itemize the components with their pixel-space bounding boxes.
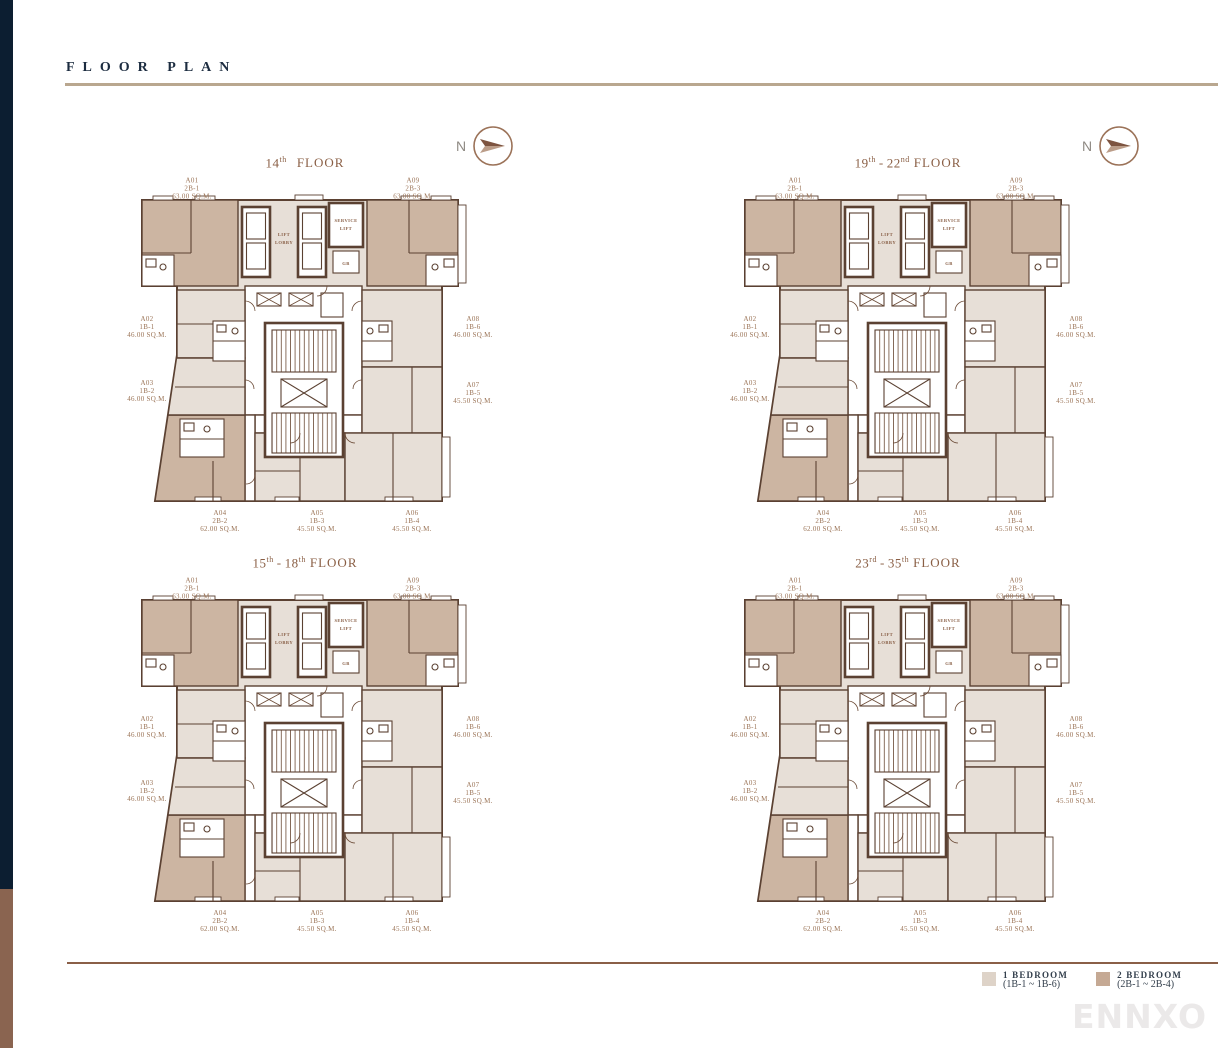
svg-text:1B-1: 1B-1 [139, 723, 154, 731]
svg-text:1B-1: 1B-1 [742, 323, 757, 331]
svg-text:A05: A05 [914, 509, 927, 517]
svg-text:1B-1: 1B-1 [742, 723, 757, 731]
staircase-upper [875, 730, 939, 772]
unit-label-a08: A08 1B-6 46.00 SQ.M. [1056, 715, 1095, 739]
lift-car [906, 643, 925, 669]
svg-text:63.00 SQ.M.: 63.00 SQ.M. [996, 593, 1035, 601]
lift-car [850, 643, 869, 669]
svg-text:A06: A06 [1009, 909, 1022, 917]
lift-lobby: LIFT LOBBY SERVICE LIFT GB [845, 203, 966, 277]
svg-text:1B-1: 1B-1 [139, 323, 154, 331]
svg-text:A01: A01 [789, 577, 802, 585]
svg-text:1B-2: 1B-2 [742, 387, 757, 395]
service-lift-label: LIFT [943, 226, 955, 231]
unit-label-a02: A02 1B-1 46.00 SQ.M. [730, 715, 769, 739]
lift-car [303, 613, 322, 639]
lift-lobby-label: LOBBY [878, 640, 896, 645]
svg-text:A08: A08 [1070, 315, 1083, 323]
unit-label-a02: A02 1B-1 46.00 SQ.M. [127, 315, 166, 339]
svg-text:1B-5: 1B-5 [1068, 789, 1083, 797]
svg-text:1B-5: 1B-5 [465, 789, 480, 797]
title-floor-word: FLOOR [297, 155, 345, 170]
title-floor-start-ordinal: th [869, 155, 876, 164]
title-separator: - [880, 555, 885, 570]
staircase-lower [272, 413, 336, 453]
lift-car [906, 613, 925, 639]
service-lift [932, 203, 966, 247]
staircase-lower [875, 813, 939, 853]
legend-swatch-2-bedroom [1096, 972, 1110, 986]
svg-text:1B-6: 1B-6 [465, 323, 480, 331]
unit-label-a09: A09 2B-3 63.00 SQ.M. [996, 577, 1035, 601]
unit-label-a08: A08 1B-6 46.00 SQ.M. [453, 715, 492, 739]
svg-text:A07: A07 [1070, 781, 1083, 789]
svg-text:2B-3: 2B-3 [405, 585, 420, 593]
svg-text:1B-4: 1B-4 [1007, 917, 1022, 925]
service-lift-label: LIFT [943, 626, 955, 631]
svg-text:A09: A09 [407, 177, 420, 185]
title-floor-end-ordinal: th [299, 555, 306, 564]
unit-a07 [965, 767, 1045, 833]
lift-car [850, 613, 869, 639]
svg-text:A03: A03 [744, 379, 757, 387]
floor-plan-19th-22nd: 19th-22ndFLOOR [698, 155, 1148, 545]
svg-text:46.00 SQ.M.: 46.00 SQ.M. [127, 795, 166, 803]
lift-car [850, 213, 869, 239]
unit-a07 [965, 367, 1045, 433]
compass-north-label: N [456, 138, 466, 154]
svg-text:2B-2: 2B-2 [212, 917, 227, 925]
svg-text:45.50 SQ.M.: 45.50 SQ.M. [453, 397, 492, 405]
floor-plan-drawing: LIFT LOBBY SERVICE LIFT GB A01 2B-1 63.0… [698, 575, 1148, 943]
svg-text:A09: A09 [407, 577, 420, 585]
gb-label: GB [342, 261, 349, 266]
compass-north-label: N [1082, 138, 1092, 154]
lift-car [247, 613, 266, 639]
lift-car [303, 213, 322, 239]
svg-text:A08: A08 [1070, 715, 1083, 723]
unit-label-a01: A01 2B-1 63.00 SQ.M. [172, 577, 211, 601]
svg-text:2B-1: 2B-1 [787, 585, 802, 593]
service-lift-label: SERVICE [937, 218, 960, 223]
floor-plan-title: 19th-22ndFLOOR [683, 155, 1133, 175]
lift-lobby: LIFT LOBBY SERVICE LIFT GB [242, 203, 363, 277]
svg-text:A06: A06 [406, 509, 419, 517]
svg-text:A04: A04 [817, 509, 830, 517]
svg-text:62.00 SQ.M.: 62.00 SQ.M. [803, 525, 842, 533]
staircase-upper [875, 330, 939, 372]
svg-text:1B-6: 1B-6 [465, 723, 480, 731]
service-lift-label: LIFT [340, 226, 352, 231]
floor-plan-page: FLOOR PLAN N N 14thFLOOR [0, 0, 1218, 1048]
svg-text:46.00 SQ.M.: 46.00 SQ.M. [730, 795, 769, 803]
gb-label: GB [945, 261, 952, 266]
unit-label-a06: A06 1B-4 45.50 SQ.M. [392, 909, 431, 933]
floor-plan-title: 15th-18thFLOOR [80, 555, 530, 575]
svg-text:2B-2: 2B-2 [815, 917, 830, 925]
svg-text:A05: A05 [311, 509, 324, 517]
svg-text:45.50 SQ.M.: 45.50 SQ.M. [900, 525, 939, 533]
legend-swatch-1-bedroom [982, 972, 996, 986]
lift-lobby: LIFT LOBBY SERVICE LIFT GB [242, 603, 363, 677]
svg-text:A03: A03 [744, 779, 757, 787]
lift-car [247, 643, 266, 669]
svg-text:46.00 SQ.M.: 46.00 SQ.M. [730, 731, 769, 739]
svg-text:A03: A03 [141, 779, 154, 787]
unit-label-a09: A09 2B-3 63.00 SQ.M. [393, 577, 432, 601]
svg-text:1B-3: 1B-3 [309, 517, 324, 525]
service-lift-label: SERVICE [334, 618, 357, 623]
service-lift-label: SERVICE [937, 618, 960, 623]
unit-label-a09: A09 2B-3 63.00 SQ.M. [393, 177, 432, 201]
svg-text:46.00 SQ.M.: 46.00 SQ.M. [127, 331, 166, 339]
unit-label-a01: A01 2B-1 63.00 SQ.M. [775, 177, 814, 201]
svg-text:46.00 SQ.M.: 46.00 SQ.M. [730, 395, 769, 403]
unit-label-a04: A04 2B-2 62.00 SQ.M. [803, 509, 842, 533]
unit-label-a07: A07 1B-5 45.50 SQ.M. [453, 381, 492, 405]
svg-text:2B-1: 2B-1 [787, 185, 802, 193]
svg-text:1B-2: 1B-2 [139, 387, 154, 395]
footer-divider [67, 962, 1218, 964]
svg-text:2B-3: 2B-3 [405, 185, 420, 193]
svg-text:1B-3: 1B-3 [912, 917, 927, 925]
floor-plan-23rd-35th: 23rd-35thFLOOR [698, 555, 1148, 945]
svg-text:46.00 SQ.M.: 46.00 SQ.M. [730, 331, 769, 339]
svg-text:45.50 SQ.M.: 45.50 SQ.M. [297, 925, 336, 933]
svg-text:A01: A01 [789, 177, 802, 185]
svg-text:46.00 SQ.M.: 46.00 SQ.M. [453, 331, 492, 339]
svg-text:A01: A01 [186, 577, 199, 585]
svg-text:63.00 SQ.M.: 63.00 SQ.M. [172, 593, 211, 601]
lift-lobby-label: LOBBY [275, 640, 293, 645]
svg-text:A05: A05 [311, 909, 324, 917]
svg-text:1B-5: 1B-5 [1068, 389, 1083, 397]
unit-label-a08: A08 1B-6 46.00 SQ.M. [453, 315, 492, 339]
unit-label-a06: A06 1B-4 45.50 SQ.M. [392, 509, 431, 533]
svg-text:1B-6: 1B-6 [1068, 723, 1083, 731]
svg-text:45.50 SQ.M.: 45.50 SQ.M. [453, 797, 492, 805]
svg-text:A09: A09 [1010, 177, 1023, 185]
unit-label-a04: A04 2B-2 62.00 SQ.M. [200, 909, 239, 933]
title-separator: - [277, 555, 282, 570]
svg-text:1B-6: 1B-6 [1068, 323, 1083, 331]
brand-watermark: ENNXO [1072, 997, 1207, 1036]
title-floor-end-ordinal: nd [901, 155, 910, 164]
lift-lobby-label: LIFT [278, 232, 290, 237]
svg-text:A01: A01 [186, 177, 199, 185]
title-floor-start-ordinal: rd [869, 555, 877, 564]
floor-plan-15th-18th: 15th-18thFLOOR [95, 555, 545, 945]
svg-text:46.00 SQ.M.: 46.00 SQ.M. [1056, 331, 1095, 339]
svg-text:2B-2: 2B-2 [212, 517, 227, 525]
gb-label: GB [945, 661, 952, 666]
title-floor-end: 22 [887, 155, 901, 170]
svg-text:46.00 SQ.M.: 46.00 SQ.M. [453, 731, 492, 739]
unit-label-a07: A07 1B-5 45.50 SQ.M. [1056, 781, 1095, 805]
svg-text:45.50 SQ.M.: 45.50 SQ.M. [392, 525, 431, 533]
title-floor-start-ordinal: th [280, 155, 287, 164]
unit-label-a01: A01 2B-1 63.00 SQ.M. [172, 177, 211, 201]
lift-lobby-label: LIFT [278, 632, 290, 637]
legend-item-2-bedroom: 2 BEDROOM (2B-1 ~ 2B-4) [1096, 971, 1182, 991]
staircase-lower [875, 413, 939, 453]
svg-text:1B-2: 1B-2 [139, 787, 154, 795]
service-lift-label: LIFT [340, 626, 352, 631]
svg-text:A07: A07 [1070, 381, 1083, 389]
title-floor-start: 23 [855, 555, 869, 570]
svg-text:1B-5: 1B-5 [465, 389, 480, 397]
svg-text:A02: A02 [141, 315, 154, 323]
unit-label-a06: A06 1B-4 45.50 SQ.M. [995, 509, 1034, 533]
lift-car [303, 243, 322, 269]
unit-label-a03: A03 1B-2 46.00 SQ.M. [730, 379, 769, 403]
unit-label-a06: A06 1B-4 45.50 SQ.M. [995, 909, 1034, 933]
svg-text:63.00 SQ.M.: 63.00 SQ.M. [996, 193, 1035, 201]
staircase-upper [272, 730, 336, 772]
unit-label-a03: A03 1B-2 46.00 SQ.M. [127, 779, 166, 803]
svg-text:1B-2: 1B-2 [742, 787, 757, 795]
svg-text:A02: A02 [744, 315, 757, 323]
lift-car [850, 243, 869, 269]
service-lift [329, 203, 363, 247]
svg-text:A02: A02 [141, 715, 154, 723]
svg-text:A04: A04 [214, 909, 227, 917]
unit-label-a02: A02 1B-1 46.00 SQ.M. [730, 315, 769, 339]
lift-lobby-label: LIFT [881, 232, 893, 237]
lift-car [303, 643, 322, 669]
svg-text:45.50 SQ.M.: 45.50 SQ.M. [995, 925, 1034, 933]
svg-text:46.00 SQ.M.: 46.00 SQ.M. [127, 395, 166, 403]
floor-plan-drawing: LIFT LOBBY SERVICE LIFT GB A01 2B-1 63.0… [698, 175, 1148, 543]
unit-a07 [362, 367, 442, 433]
title-floor-start: 15 [253, 555, 267, 570]
svg-text:2B-1: 2B-1 [184, 585, 199, 593]
unit-label-a05: A05 1B-3 45.50 SQ.M. [900, 509, 939, 533]
svg-text:45.50 SQ.M.: 45.50 SQ.M. [1056, 397, 1095, 405]
unit-label-a09: A09 2B-3 63.00 SQ.M. [996, 177, 1035, 201]
svg-text:63.00 SQ.M.: 63.00 SQ.M. [393, 593, 432, 601]
svg-text:63.00 SQ.M.: 63.00 SQ.M. [172, 193, 211, 201]
title-floor-end: 18 [285, 555, 299, 570]
svg-text:45.50 SQ.M.: 45.50 SQ.M. [995, 525, 1034, 533]
floor-plan-drawing: LIFT LOBBY SERVICE LIFT GB A01 2B-1 63.0… [95, 575, 545, 943]
unit-label-a04: A04 2B-2 62.00 SQ.M. [200, 509, 239, 533]
floor-plan-title: 14thFLOOR [80, 155, 530, 175]
svg-text:A07: A07 [467, 381, 480, 389]
gb-label: GB [342, 661, 349, 666]
svg-text:2B-1: 2B-1 [184, 185, 199, 193]
title-floor-word: FLOOR [914, 155, 962, 170]
floor-plan-14th: 14thFLOOR [95, 155, 545, 545]
svg-text:A08: A08 [467, 715, 480, 723]
lift-lobby-label: LIFT [881, 632, 893, 637]
title-floor-word: FLOOR [310, 555, 358, 570]
svg-text:46.00 SQ.M.: 46.00 SQ.M. [1056, 731, 1095, 739]
svg-text:1B-4: 1B-4 [1007, 517, 1022, 525]
svg-text:2B-3: 2B-3 [1008, 585, 1023, 593]
svg-text:A08: A08 [467, 315, 480, 323]
unit-label-a08: A08 1B-6 46.00 SQ.M. [1056, 315, 1095, 339]
lift-car [247, 243, 266, 269]
svg-text:A04: A04 [214, 509, 227, 517]
unit-a07 [362, 767, 442, 833]
title-floor-end-ordinal: th [902, 555, 909, 564]
svg-text:1B-3: 1B-3 [309, 917, 324, 925]
lift-car [906, 243, 925, 269]
svg-text:45.50 SQ.M.: 45.50 SQ.M. [900, 925, 939, 933]
unit-label-a05: A05 1B-3 45.50 SQ.M. [900, 909, 939, 933]
staircase-upper [272, 330, 336, 372]
svg-text:A07: A07 [467, 781, 480, 789]
unit-label-a03: A03 1B-2 46.00 SQ.M. [127, 379, 166, 403]
svg-text:A06: A06 [1009, 509, 1022, 517]
svg-text:1B-4: 1B-4 [404, 517, 419, 525]
floor-plan-title: 23rd-35thFLOOR [683, 555, 1133, 575]
unit-type-legend: 1 BEDROOM (1B-1 ~ 1B-6) 2 BEDROOM (2B-1 … [982, 971, 1182, 991]
lift-car [247, 213, 266, 239]
svg-text:46.00 SQ.M.: 46.00 SQ.M. [127, 731, 166, 739]
service-lift [932, 603, 966, 647]
unit-label-a07: A07 1B-5 45.50 SQ.M. [453, 781, 492, 805]
lift-car [906, 213, 925, 239]
svg-text:45.50 SQ.M.: 45.50 SQ.M. [392, 925, 431, 933]
unit-label-a05: A05 1B-3 45.50 SQ.M. [297, 909, 336, 933]
title-floor-word: FLOOR [913, 555, 961, 570]
legend-item-1-bedroom: 1 BEDROOM (1B-1 ~ 1B-6) [982, 971, 1068, 991]
legend-range: (2B-1 ~ 2B-4) [1117, 980, 1182, 991]
svg-text:62.00 SQ.M.: 62.00 SQ.M. [200, 525, 239, 533]
svg-text:A06: A06 [406, 909, 419, 917]
svg-text:45.50 SQ.M.: 45.50 SQ.M. [1056, 797, 1095, 805]
svg-text:63.00 SQ.M.: 63.00 SQ.M. [393, 193, 432, 201]
lift-lobby: LIFT LOBBY SERVICE LIFT GB [845, 603, 966, 677]
svg-text:45.50 SQ.M.: 45.50 SQ.M. [297, 525, 336, 533]
svg-text:63.00 SQ.M.: 63.00 SQ.M. [775, 593, 814, 601]
lift-lobby-label: LOBBY [878, 240, 896, 245]
header-divider [65, 83, 1218, 86]
unit-label-a07: A07 1B-5 45.50 SQ.M. [1056, 381, 1095, 405]
legend-range: (1B-1 ~ 1B-6) [1003, 980, 1068, 991]
svg-text:A03: A03 [141, 379, 154, 387]
unit-label-a02: A02 1B-1 46.00 SQ.M. [127, 715, 166, 739]
svg-text:2B-3: 2B-3 [1008, 185, 1023, 193]
svg-text:A09: A09 [1010, 577, 1023, 585]
svg-text:1B-3: 1B-3 [912, 517, 927, 525]
left-edge-navy-bar [0, 0, 13, 889]
svg-text:62.00 SQ.M.: 62.00 SQ.M. [200, 925, 239, 933]
unit-label-a01: A01 2B-1 63.00 SQ.M. [775, 577, 814, 601]
title-separator: - [879, 155, 884, 170]
title-floor-start: 19 [855, 155, 869, 170]
floor-plan-drawing: LIFT LOBBY SERVICE LIFT GB A01 2B-1 63.0… [95, 175, 545, 543]
unit-label-a05: A05 1B-3 45.50 SQ.M. [297, 509, 336, 533]
title-floor-start: 14 [266, 155, 280, 170]
staircase-lower [272, 813, 336, 853]
svg-text:63.00 SQ.M.: 63.00 SQ.M. [775, 193, 814, 201]
service-lift-label: SERVICE [334, 218, 357, 223]
svg-text:A04: A04 [817, 909, 830, 917]
page-title: FLOOR PLAN [66, 60, 237, 76]
lift-lobby-label: LOBBY [275, 240, 293, 245]
unit-label-a04: A04 2B-2 62.00 SQ.M. [803, 909, 842, 933]
svg-text:2B-2: 2B-2 [815, 517, 830, 525]
svg-text:A02: A02 [744, 715, 757, 723]
unit-label-a03: A03 1B-2 46.00 SQ.M. [730, 779, 769, 803]
svg-text:62.00 SQ.M.: 62.00 SQ.M. [803, 925, 842, 933]
service-lift [329, 603, 363, 647]
title-floor-start-ordinal: th [267, 555, 274, 564]
svg-text:1B-4: 1B-4 [404, 917, 419, 925]
left-edge-brown-bar [0, 889, 13, 1048]
svg-text:A05: A05 [914, 909, 927, 917]
title-floor-end: 35 [888, 555, 902, 570]
